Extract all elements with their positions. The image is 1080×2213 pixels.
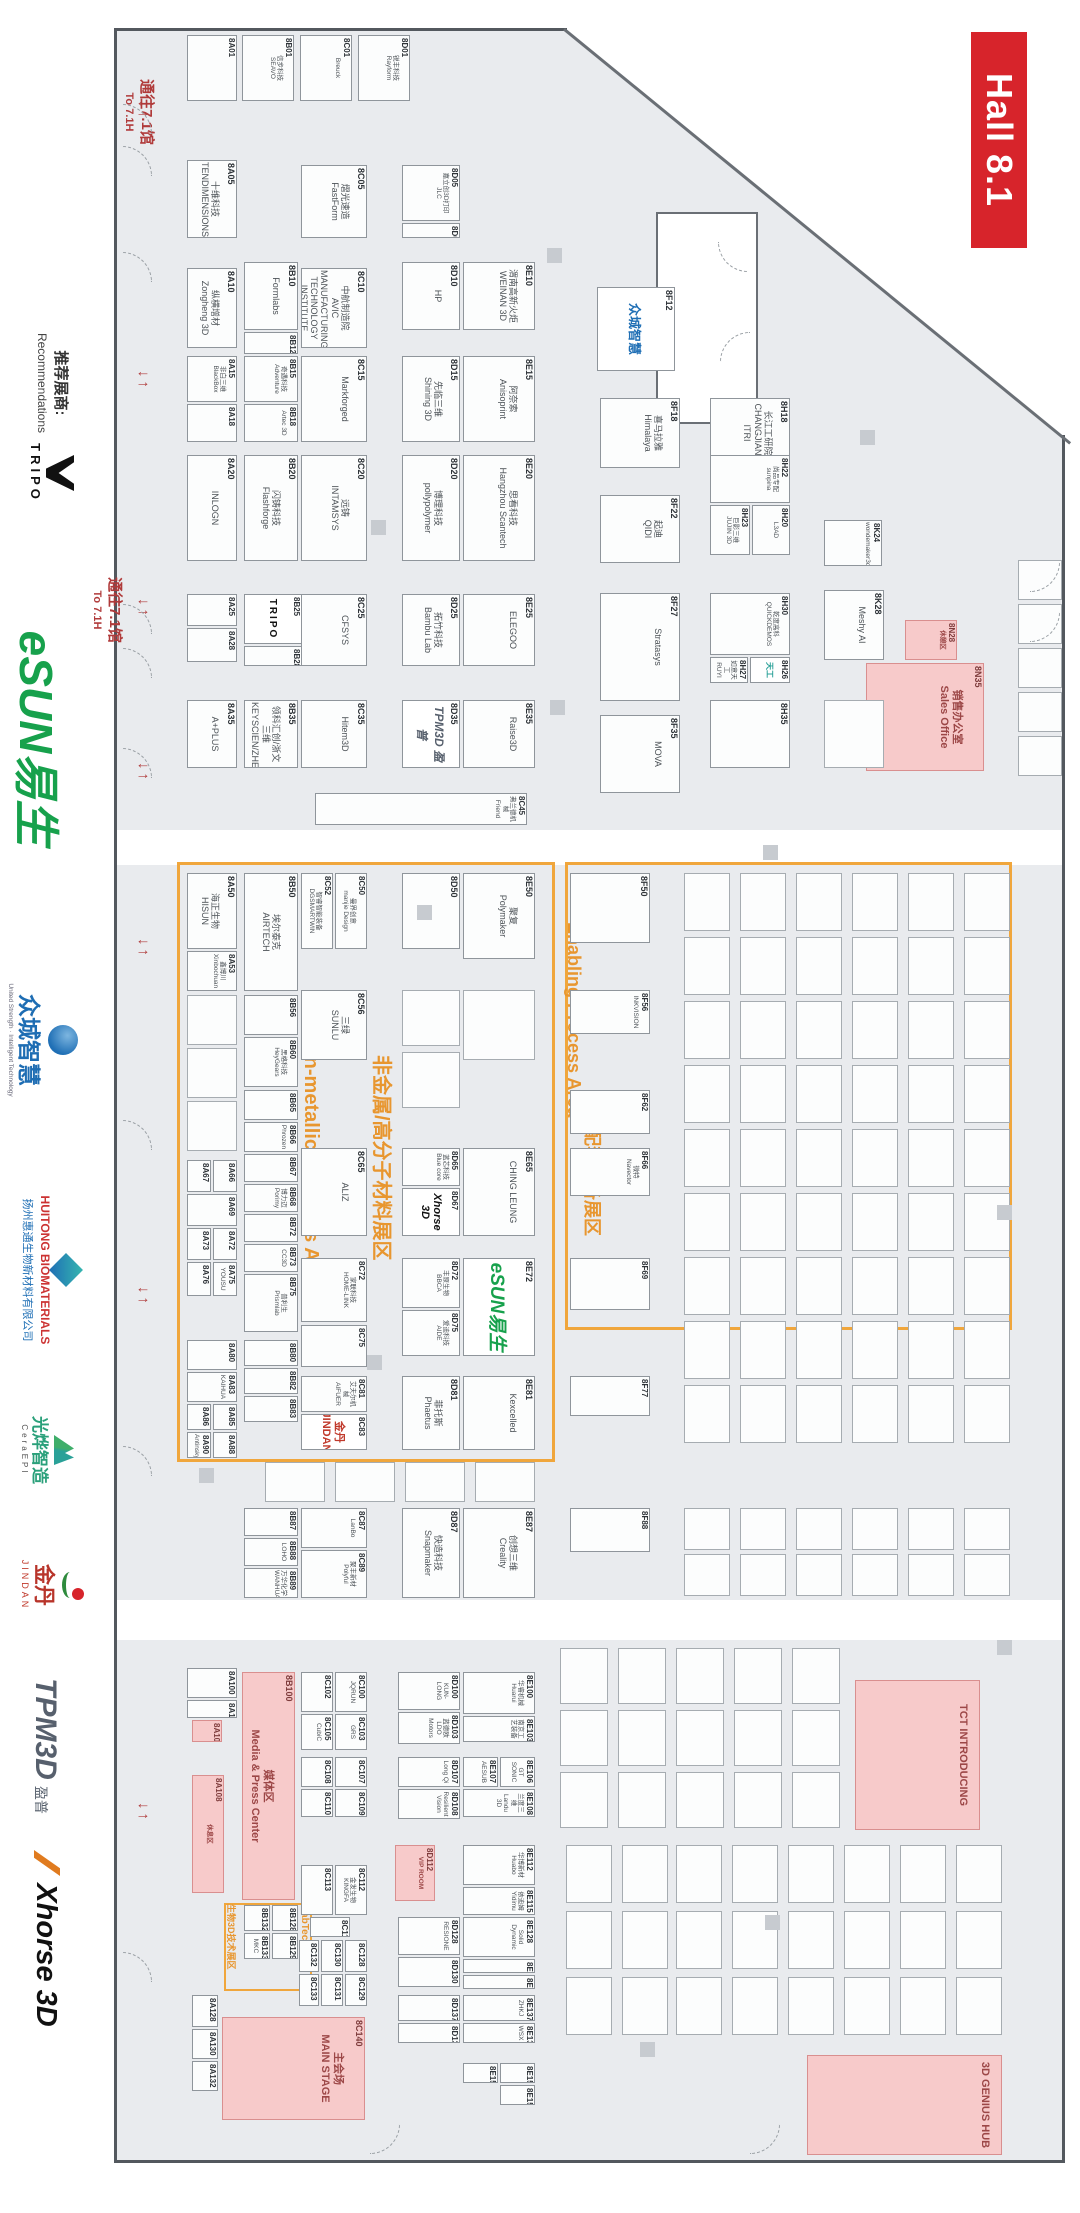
booth-unlabeled	[908, 1129, 954, 1187]
tripo-logo-icon	[46, 455, 74, 491]
booth-unlabeled	[740, 1065, 786, 1123]
sponsor-logo-tpm3d: TPM3D盈普	[28, 1656, 62, 1836]
booth-unlabeled	[622, 1911, 668, 1969]
booth-name: 3D GENIUS HUB	[978, 2056, 991, 2154]
booth-name: ELEGOO	[508, 595, 518, 665]
booth-name: Meshy AI	[857, 591, 867, 659]
booth-code: 8D75	[450, 1311, 459, 1355]
entrance-arrows-icon: ↓↑	[135, 938, 152, 959]
booth-unlabeled	[684, 873, 730, 931]
booth-unlabeled	[852, 1321, 898, 1379]
booth-unlabeled	[956, 1911, 1002, 1969]
booth-8C133: 8C133	[299, 1974, 319, 2006]
booth-code: 8D103	[450, 1713, 459, 1743]
booth-name: A+PLUS	[210, 701, 220, 767]
booth-8E72: 8E72eSUN易生	[463, 1258, 535, 1356]
booth-code: 8E87	[524, 1509, 534, 1597]
booth-code: 8C103	[357, 1715, 366, 1749]
booth-unlabeled	[964, 1257, 1010, 1315]
booth-code: 8D72	[450, 1259, 459, 1307]
booth-unlabeled	[684, 937, 730, 995]
booth-8A76: 8A76	[187, 1262, 211, 1296]
booth-name: Antinsky	[193, 1433, 200, 1457]
booth-unlabeled	[956, 1845, 1002, 1903]
booth-unlabeled	[684, 1321, 730, 1379]
booth-code: 8B28	[292, 647, 301, 665]
booth-code: 8E153	[488, 2064, 497, 2082]
booth-code: 8H30	[780, 594, 789, 654]
booth-code: 8F27	[669, 594, 679, 700]
booth-code: 8C133	[309, 1975, 318, 2005]
booth-8B87: 8B87	[244, 1508, 298, 1536]
booth-8E100: 8E100华睿机械 Huarui	[463, 1672, 535, 1714]
booth-code: 8C81	[357, 1377, 366, 1411]
booth-unlabeled	[852, 1554, 898, 1596]
booth-name: CubiC	[315, 1715, 322, 1749]
booth-name: JQRUN	[349, 1673, 356, 1711]
booth-unlabeled	[566, 1911, 612, 1969]
booth-unlabeled	[796, 1508, 842, 1550]
booth-code: 8B20	[287, 456, 297, 560]
booth-name: 巨影三维 JUJIN 3D	[724, 506, 739, 554]
area-labtec-label-cn: 生物3D技术展区	[225, 1904, 238, 1970]
booth-8A50: 8A50海正生物 HISUN	[187, 873, 237, 949]
booth-code: 8E107	[488, 1758, 497, 1786]
booth-name: MOVA	[653, 716, 663, 792]
booth-8C113: 8C113	[301, 1865, 333, 1915]
booth-code: 8K28	[873, 591, 883, 659]
booth-8C72: 8C72家联科技 HOME-LINK	[301, 1258, 367, 1322]
booth-unlabeled	[852, 1193, 898, 1251]
booth-name: 起迪 QIDI	[642, 496, 663, 562]
booth-unlabeled	[792, 1772, 840, 1828]
booth-8A128: 8A128	[192, 1995, 218, 2027]
booth-name: TCT INTRODUCING	[956, 1681, 969, 1829]
booth-8E107: 8E107AESUB	[463, 1757, 498, 1787]
booth-8C128: 8C128	[345, 1940, 367, 1972]
booth-unlabeled	[852, 1508, 898, 1550]
booth-code: 8E72	[524, 1259, 534, 1282]
booth-code: 8F50	[639, 874, 649, 942]
booth-8C15: 8C15Markforged	[301, 356, 367, 442]
booth-code: 8C65	[356, 1149, 366, 1235]
booth-code: 8A35	[226, 701, 236, 767]
booth-8B10: 8B10Formlabs	[244, 262, 298, 330]
booth-8A18: 8A18	[187, 404, 237, 442]
booth-8A25: 8A25	[187, 594, 237, 626]
booth-name: 嘉立创3D打印 JLC	[434, 166, 449, 220]
booth-8B67: 8B67	[244, 1154, 298, 1182]
booth-name: LOHO	[280, 1539, 287, 1565]
booth-name: KUN-LONG	[434, 1673, 449, 1709]
booth-code: 8E130	[525, 1976, 534, 1988]
booth-name: 智睿智能装备 DGSMARTWIN	[307, 874, 322, 948]
booth-8D15: 8D15先临三维 Shining 3D	[402, 356, 460, 442]
booth-name: 兰度三维 Landu 3D	[494, 1790, 524, 1816]
booth-8C102: 8C102	[301, 1672, 333, 1712]
booth-unlabeled	[788, 1911, 834, 1969]
booth-8C01: 8C01Breuck	[300, 35, 352, 101]
booth-8E137: 8E137ZHKJ	[463, 1995, 535, 2021]
booth-unlabeled	[908, 1065, 954, 1123]
booth-code: 8E112	[525, 1846, 534, 1884]
booth-name: 先临三维 Shining 3D	[422, 357, 443, 441]
booth-8C100: 8C100JQRUN	[335, 1672, 367, 1712]
booth-code: 8E103	[525, 1717, 534, 1741]
booth-unlabeled	[852, 937, 898, 995]
booth-code: 8C131	[333, 1975, 342, 2005]
booth-unlabeled	[740, 1554, 786, 1596]
booth-8B35: 8B35领科汇创/浙文三维 KEYSCIEN/ZHEWEN	[244, 700, 298, 768]
booth-code: 8A100	[227, 1669, 236, 1697]
booth-code: 8B50	[287, 874, 297, 990]
booth-8D01: 8D01锐丰科技 Rayform	[358, 35, 410, 101]
pillar	[997, 1640, 1012, 1655]
booth-code: 8C72	[357, 1259, 366, 1321]
booth-8B133: 8B133MKC	[244, 1933, 270, 1959]
booth-8B89: 8B89万华化学 WANHUA	[244, 1568, 298, 1598]
booth-8B75: 8B75普利生 Prismlab	[244, 1274, 298, 1332]
booth-8F50: 8F50	[570, 873, 650, 943]
booth-8A35: 8A35A+PLUS	[187, 700, 237, 768]
booth-unlabeled	[405, 1462, 465, 1502]
sponsor-logo-tripo: TRIPO	[28, 438, 74, 508]
booth-code: 8C108	[323, 1758, 332, 1786]
booth-code: 8C113	[323, 1866, 332, 1914]
booth-8D128: 8D128RESIONE	[398, 1917, 460, 1955]
booth-8D06: 8D06	[402, 223, 460, 238]
booth-name: ZHKJ	[517, 1996, 524, 2020]
booth-code: 8D50	[449, 874, 459, 948]
booth-8B132: 8B132	[244, 1905, 270, 1931]
booth-unlabeled	[792, 1648, 840, 1704]
booth-8B88: 8B88LOHO	[244, 1538, 298, 1566]
booth-unlabeled	[676, 1977, 722, 2035]
booth-name: CFSYS	[340, 595, 350, 665]
booth-8D10: 8D10HP	[402, 262, 460, 330]
booth-name: Raise3D	[508, 701, 518, 767]
booth-unlabeled	[684, 1554, 730, 1596]
booth-8B83: 8B83	[244, 1396, 298, 1422]
zhongcheng-logo: 众城智慧	[627, 303, 646, 355]
booth-code: 8D06	[450, 224, 459, 237]
recommended-label-cn: 推荐展商:	[51, 318, 72, 448]
booth-name: 聚丰新材 Polyful	[341, 1551, 356, 1597]
booth-code: 8C112	[357, 1866, 366, 1914]
booth-code: 8D35	[449, 701, 459, 725]
booth-code: 8C20	[356, 456, 366, 560]
booth-code: 8A69	[227, 1195, 236, 1225]
booth-8A66: 8A66	[213, 1160, 237, 1192]
booth-name: Resilient Vision	[434, 1790, 449, 1818]
booth-code: 8C109	[357, 1790, 366, 1816]
booth-unlabeled	[796, 1257, 842, 1315]
booth-8D20: 8D20博理科技 pollypolymer	[402, 455, 460, 561]
booth-code: 8E65	[524, 1149, 534, 1235]
pillar	[860, 430, 875, 445]
sponsor-logo-ceraepi: 光烨智造 CeraEPI	[20, 1390, 74, 1510]
booth-8F77: 8F77	[570, 1376, 650, 1416]
booth-name: 锐丰科技 Rayform	[384, 36, 399, 100]
booth-unlabeled	[335, 1462, 395, 1502]
booth-unlabeled	[684, 1129, 730, 1187]
booth-code: 8A28	[227, 629, 236, 661]
xhorse-logo: Xhorse 3D	[419, 1189, 443, 1235]
tiangong-logo: 天工	[765, 662, 776, 678]
booth-code: 8A76	[201, 1263, 210, 1295]
booth-unlabeled	[740, 1385, 786, 1443]
booth-unlabeled	[908, 1193, 954, 1251]
booth-name: 蓝德欧 LDO Motors	[427, 1713, 449, 1743]
booth-unlabeled	[676, 1710, 724, 1766]
booth-8D05: 8D05嘉立创3D打印 JLC	[402, 165, 460, 221]
booth-8D137: 8D137	[398, 1995, 460, 2021]
booth-8D107: 8D107Long Qi	[398, 1757, 460, 1787]
booth-name: 尚品专配 sunpina	[764, 456, 779, 502]
booth-8A69: 8A69	[187, 1194, 237, 1226]
booth-8B66: 8B66Phrozen	[244, 1122, 298, 1152]
booth-8C118: 8C118	[310, 1917, 350, 1937]
booth-unlabeled	[560, 1648, 608, 1704]
booth-name: 十维科技 TENDIMENSIONS	[199, 161, 220, 237]
booth-8A83: 8A83KAIHUA	[187, 1372, 237, 1402]
booth-code: 8D100	[450, 1673, 459, 1709]
booth-8A01: 8A01	[187, 35, 237, 101]
booth-code: 8A72	[227, 1229, 236, 1259]
booth-code: 8A75	[227, 1263, 236, 1295]
booth-code: 8E106	[525, 1758, 534, 1786]
booth-code: 8A105	[212, 1721, 221, 1741]
booth-3D GENIUS HUB: 3D GENIUS HUB	[807, 2055, 1002, 2155]
booth-8A80: 8A80	[187, 1340, 237, 1370]
booth-8C105: 8C105CubiC	[301, 1714, 333, 1750]
booth-code: 8B01	[284, 36, 293, 100]
booth-8D25: 8D25拓竹科技 Bambu Lab	[402, 594, 460, 666]
wall-left	[115, 28, 567, 31]
booth-code: 8D81	[449, 1377, 459, 1449]
booth-unlabeled	[684, 1065, 730, 1123]
booth-name: Markforged	[340, 357, 350, 441]
booth-name: 博理科技 pollypolymer	[422, 456, 443, 560]
booth-unlabeled	[402, 990, 460, 1046]
booth-8C52: 8C52智睿智能装备 DGSMARTWIN	[301, 873, 333, 949]
booth-8C108: 8C108	[301, 1757, 333, 1787]
booth-name: 丰原生物 BBCA	[434, 1259, 449, 1307]
booth-code: 8F66	[640, 1149, 649, 1195]
booth-8C81: 8C81艾夫尔机械 AIFUER	[301, 1376, 367, 1412]
wall-bottom	[114, 28, 117, 2163]
booth-8C20: 8C20远铸 INTAMSYS	[301, 455, 367, 561]
booth-code: 8B83	[288, 1397, 297, 1421]
booth-8F56: 8F56INKVISION	[570, 990, 650, 1034]
booth-8A53: 8A53鑫博川 Xinbochuan	[187, 951, 237, 991]
booth-8B73: 8B73CC3D	[244, 1244, 298, 1272]
booth-8E129: 8E129	[463, 1959, 535, 1973]
booth-8D35: 8D35TPM3D 盈普	[402, 700, 460, 768]
booth-name: Breuck	[334, 36, 341, 100]
booth-name: 菲托斯 Phaetus	[422, 1377, 443, 1449]
booth-unlabeled	[676, 1845, 722, 1903]
booth-8B25: 8B25TRIPO	[244, 594, 302, 644]
booth-code: 8C35	[356, 701, 366, 767]
booth-code: 8E100	[525, 1673, 534, 1713]
booth-8A88: 8A88	[213, 1432, 237, 1458]
booth-name: Artec 3D	[280, 405, 287, 441]
booth-8C103: 8C103GRS	[335, 1714, 367, 1750]
booth-code: 8C89	[357, 1551, 366, 1597]
booth-name: 鑫博川 Xinbochuan	[211, 952, 226, 990]
booth-name: 艾夫尔机械 AIFUER	[334, 1377, 356, 1411]
booth-8E130: 8E130	[463, 1975, 535, 1989]
entrance-arrows-icon: ↓↑	[135, 370, 152, 391]
floor-plan: Hall 8.1 通往7.1馆 To 7.1H 通往7.1馆 To 7.1H 非…	[0, 0, 1080, 2213]
booth-code: 8A05	[226, 161, 236, 237]
booth-name: HP	[433, 263, 443, 329]
booth-code: 8B72	[288, 1215, 297, 1241]
booth-8A05: 8A05十维科技 TENDIMENSIONS	[187, 160, 237, 238]
booth-code: 8A86	[201, 1405, 210, 1429]
booth-code: 8B89	[288, 1569, 297, 1597]
booth-8A75: 8A75YOUSU	[213, 1262, 237, 1296]
booth-8F88: 8F88	[570, 1508, 650, 1552]
booth-name: Long Qi	[442, 1758, 449, 1786]
booth-8F27: 8F27Stratasys	[600, 593, 680, 701]
booth-8H23: 8H23巨影三维 JUJIN 3D	[710, 505, 750, 555]
sponsor-logo-zhongcheng: 众城智慧 United Strength · Intelligent Techn…	[7, 940, 78, 1140]
booth-unlabeled	[684, 1001, 730, 1059]
booth-name: Stratasys	[653, 594, 663, 700]
booth-name: 依迪姆 Yidimu	[509, 1888, 524, 1914]
booth-unlabeled	[792, 1710, 840, 1766]
booth-unlabeled	[908, 873, 954, 931]
booth-unlabeled	[844, 1845, 890, 1903]
booth-name: 奇遇科技 Adventure	[272, 357, 287, 401]
booth-unlabeled	[964, 1385, 1010, 1443]
booth-8K24: 8K24wondemaker3d	[824, 520, 882, 566]
booth-code: 8C56	[356, 991, 366, 1059]
booth-8A108: 8A108休息区	[192, 1775, 224, 1893]
booth-8A90: 8A90Antinsky	[187, 1432, 211, 1458]
booth-name: 弗兰德机械 Friend	[494, 794, 516, 824]
booth-name: 渭南高新火炬 WEINAN 3D	[497, 263, 518, 329]
booth-code: 8B128	[288, 1906, 297, 1930]
booth-code: 8A88	[227, 1433, 236, 1457]
booth-code: 8B132	[260, 1906, 269, 1930]
booth-code: 8H22	[780, 456, 789, 502]
booth-name: Solid Dynamic	[509, 1918, 524, 1956]
booth-code: 8N35	[973, 664, 983, 770]
sponsor-logo-xhorse: Xhorse 3D	[29, 1860, 62, 2050]
booth-code: 8C102	[323, 1673, 332, 1711]
booth-code: 8E115	[525, 1888, 534, 1914]
booth-unlabeled	[740, 1001, 786, 1059]
booth-unlabeled	[734, 1772, 782, 1828]
booth-code: 8E137	[525, 1996, 534, 2020]
booth-code: 8C87	[357, 1509, 366, 1547]
booth-unlabeled	[740, 1257, 786, 1315]
booth-code: 8C83	[357, 1415, 366, 1436]
booth-8E35: 8E35Raise3D	[463, 700, 535, 768]
pillar	[997, 1205, 1012, 1220]
booth-name: Formlabs	[271, 263, 281, 329]
booth-code: 8B68	[288, 1185, 297, 1211]
booth-name: CC3D	[280, 1245, 287, 1271]
booth-unlabeled	[740, 873, 786, 931]
booth-unlabeled	[402, 1052, 460, 1108]
booth-8C131: 8C131	[321, 1974, 343, 2006]
booth-unlabeled	[964, 1065, 1010, 1123]
booth-8D103: 8D103蓝德欧 LDO Motors	[398, 1712, 460, 1744]
booth-8E106: 8E106GT SONIC	[500, 1757, 535, 1787]
booth-code: 8D20	[449, 456, 459, 560]
booth-code: 8B12	[288, 333, 297, 353]
booth-unlabeled	[740, 937, 786, 995]
booth-code: 8H20	[780, 506, 789, 554]
booth-8D130: 8D130	[398, 1957, 460, 1987]
booth-8C45: 8C45弗兰德机械 Friend	[315, 793, 527, 825]
booth-8N28: 8N28休憩区	[905, 620, 957, 660]
booth-TCT INTRODUCING: TCT INTRODUCING	[855, 1680, 980, 1830]
booth-unlabeled	[1018, 692, 1062, 732]
booth-name: 领科汇创/浙文三维 KEYSCIEN/ZHEWEN	[250, 701, 281, 767]
booth-unlabeled	[852, 1385, 898, 1443]
booth-8H35: 8H35	[710, 700, 790, 768]
booth-8E155: 8E155	[500, 2085, 535, 2105]
booth-code: 8C75	[357, 1326, 366, 1366]
booth-unlabeled	[684, 1257, 730, 1315]
pillar	[550, 700, 565, 715]
booth-code: 8A18	[227, 405, 236, 441]
booth-name: GT SONIC	[509, 1758, 524, 1786]
booth-name: 如意天工 RUYI	[715, 658, 737, 682]
booth-code: 8B10	[287, 263, 297, 329]
booth-unlabeled	[740, 1129, 786, 1187]
booth-code: 8A83	[227, 1373, 236, 1401]
booth-8C130: 8C130	[321, 1940, 343, 1972]
booth-name: 爱迪科技 AIDE	[434, 1311, 449, 1355]
booth-unlabeled	[796, 1193, 842, 1251]
booth-unlabeled	[187, 1101, 237, 1151]
esun-logo: eSUN易生	[486, 1263, 513, 1352]
booth-unlabeled	[908, 1554, 954, 1596]
booth-unlabeled	[964, 1001, 1010, 1059]
booth-8C110: 8C110	[301, 1789, 333, 1817]
booth-unlabeled	[900, 1845, 946, 1903]
booth-code: 8C52	[323, 874, 332, 948]
booth-code: 8D108	[450, 1790, 459, 1818]
booth-8A100: 8A100	[187, 1668, 237, 1698]
booth-8D65: 8D65蓝芯科技 Blue core	[402, 1148, 460, 1186]
booth-8A20: 8A20INLOGN	[187, 455, 237, 561]
booth-unlabeled	[740, 1508, 786, 1550]
pillar	[547, 248, 562, 263]
booth-code: 8E81	[524, 1377, 534, 1449]
booth-8B56: 8B56	[244, 995, 298, 1035]
booth-unlabeled	[964, 937, 1010, 995]
pillar	[417, 905, 432, 920]
booth-8B68: 8B68博力迈 Porimy	[244, 1184, 298, 1212]
tripo-logo: TRIPO	[268, 599, 279, 640]
booth-unlabeled	[1018, 648, 1062, 688]
mountain-icon	[54, 1435, 74, 1465]
booth-unlabeled	[900, 1977, 946, 2035]
booth-name: 中航制造院 AVIC MANUFACTURING TECHNOLOGY INST…	[301, 269, 350, 347]
booth-code: 8D128	[450, 1918, 459, 1954]
booth-unlabeled	[852, 1001, 898, 1059]
booth-code: 8D87	[449, 1509, 459, 1597]
booth-code: 8A128	[208, 1996, 217, 2026]
booth-code: 8B82	[288, 1369, 297, 1393]
